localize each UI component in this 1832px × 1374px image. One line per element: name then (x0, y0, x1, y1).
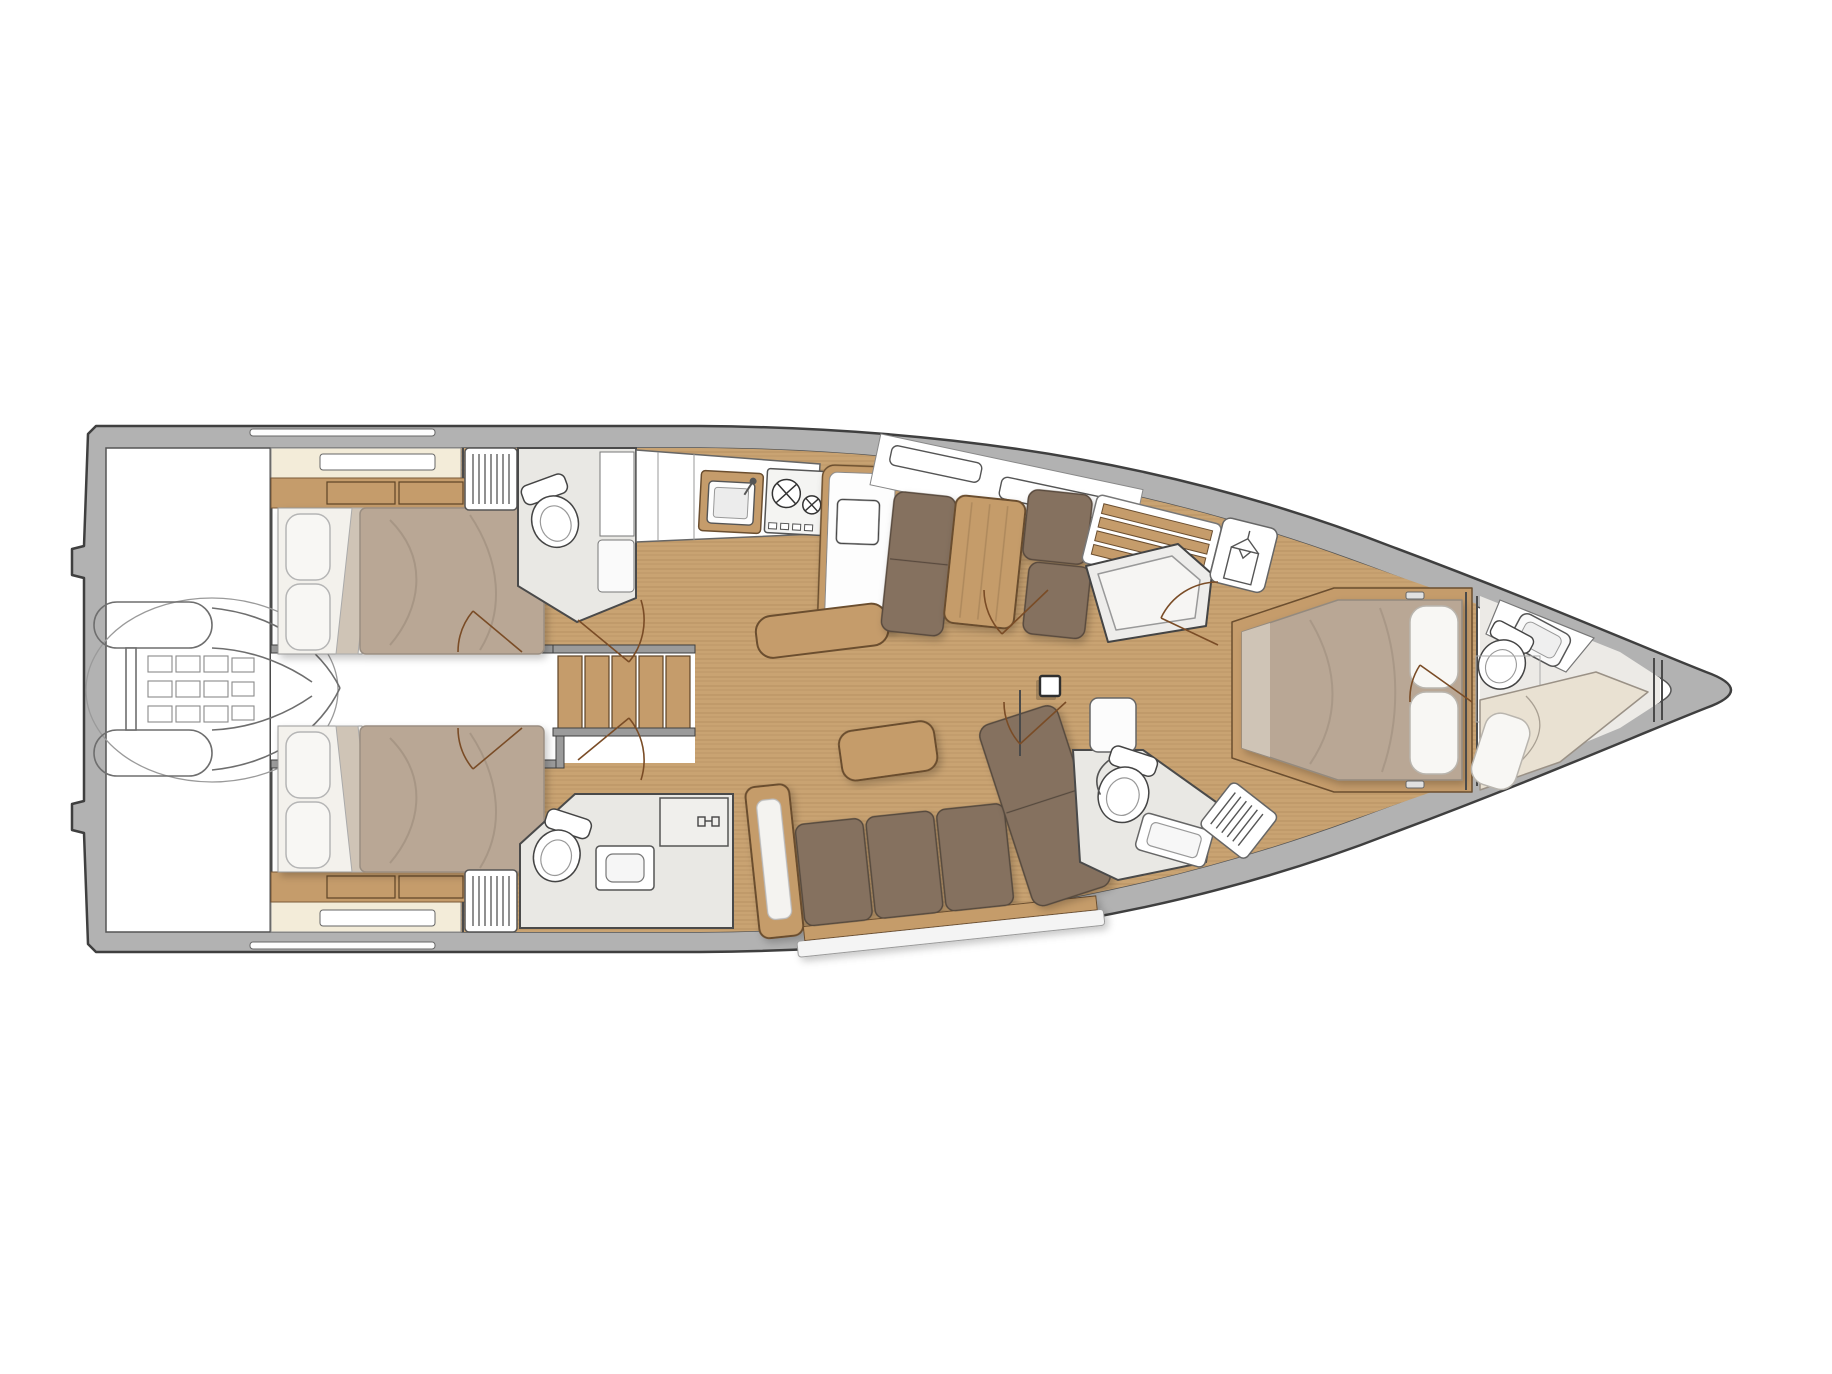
bed-pillow (286, 584, 330, 650)
stair-tread (585, 656, 609, 730)
stair-tread (612, 656, 636, 730)
double-bed (278, 508, 544, 654)
island-double-bed (1242, 600, 1462, 780)
sink-basin-inner (713, 487, 749, 519)
bed-duvet (360, 726, 544, 872)
shower-locker (660, 798, 728, 846)
stair-tread (639, 656, 663, 730)
stair-tread (666, 656, 690, 730)
shelf-inset (320, 454, 435, 470)
bed-pillow (286, 732, 330, 798)
louver-slats (473, 454, 509, 504)
bed-duvet (360, 508, 544, 654)
sofa-cushion (865, 810, 943, 919)
port-aft-head (518, 448, 636, 622)
louver-slats (473, 876, 509, 926)
dinette-table (943, 495, 1026, 630)
sofa-cushion (795, 818, 873, 927)
head-seat-shelf (598, 540, 634, 592)
dinghy-transom (126, 648, 136, 730)
table-top (943, 495, 1026, 630)
stove-icon (764, 469, 825, 536)
bed-pillow (286, 802, 330, 868)
stair-rail-bottom (553, 728, 695, 736)
louvered-locker (465, 448, 517, 510)
bed-pillow (1410, 692, 1458, 774)
hull-window-bottom (250, 942, 435, 949)
head-cabinet (600, 452, 634, 536)
head-door-panel (1090, 698, 1136, 752)
mast-post-square (1040, 676, 1060, 696)
stair-tread (558, 656, 582, 730)
bed-pillow (286, 514, 330, 580)
galley-sink-unit (698, 470, 763, 533)
starboard-day-head (520, 794, 733, 928)
frame-handle (1406, 781, 1424, 788)
island-sink (836, 499, 880, 544)
duvet-foot-fold (1242, 623, 1270, 757)
shelf-inset (320, 910, 435, 926)
mast-post (1036, 676, 1060, 700)
stair-rail-top (553, 645, 695, 653)
double-bed (278, 726, 544, 872)
starboard-aft-cabin (271, 726, 544, 932)
sofa-cushion (936, 803, 1014, 912)
yacht-floor-plan (0, 0, 1832, 1374)
head-sink (606, 854, 644, 882)
yacht-floor-plan-page (0, 0, 1832, 1374)
bench-cushion (1022, 561, 1091, 639)
louvered-locker (465, 870, 517, 932)
owner-cabin (1232, 588, 1477, 792)
frame-handle (1406, 592, 1424, 599)
port-aft-cabin (271, 448, 544, 654)
hull-window-top (250, 429, 435, 436)
bench-cushion (1022, 489, 1093, 565)
